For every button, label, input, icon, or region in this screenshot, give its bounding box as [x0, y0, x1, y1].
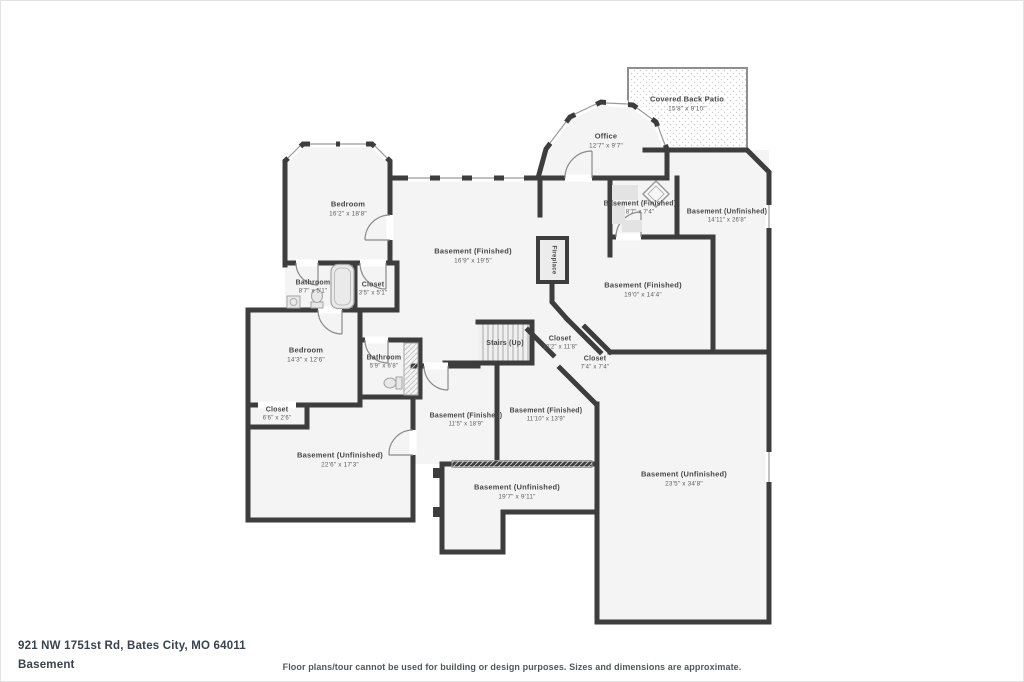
- room-name: Bedroom: [329, 201, 367, 210]
- room-dims: 16'2" x 18'8": [329, 210, 367, 217]
- room-label-basement-finished-east: Basement (Finished)19'0" x 14'4": [604, 282, 682, 299]
- room-dims: 11'10" x 13'9": [510, 417, 583, 423]
- room-name: Basement (Unfinished): [297, 452, 383, 461]
- room-dims: 6'6" x 2'6": [263, 416, 291, 422]
- room-dims: 22'6" x 17'3": [297, 461, 383, 468]
- room-label-closet-4: Closet7'4" x 7'4": [581, 355, 609, 370]
- room-name: Basement (Finished): [604, 282, 682, 291]
- room-label-covered-back-patio: Covered Back Patio15'8" x 9'10": [650, 96, 724, 113]
- room-dims: 5'9" x 6'8": [367, 364, 402, 370]
- room-name: Office: [589, 133, 623, 142]
- room-name: Basement (Finished): [604, 200, 677, 208]
- room-name: Stairs (Up): [486, 340, 524, 348]
- disclaimer-text: Floor plans/tour cannot be used for buil…: [0, 662, 1024, 672]
- room-name: Closet: [542, 335, 577, 343]
- room-label-basement-finished-s: Basement (Finished)11'10" x 13'9": [510, 407, 583, 422]
- room-label-closet-1: Closet3'5" x 5'1": [359, 281, 387, 296]
- room-label-office: Office12'7" x 9'7": [589, 133, 623, 150]
- room-name: Closet: [581, 355, 609, 363]
- room-name: Basement (Finished): [430, 412, 503, 420]
- room-label-bedroom-2: Bedroom14'3" x 12'6": [287, 347, 325, 364]
- room-name: Bathroom: [296, 279, 331, 287]
- room-label-basement-unfinished-bottom: Basement (Unfinished)19'7" x 9'11": [474, 484, 560, 501]
- room-dims: 19'0" x 14'4": [604, 291, 682, 298]
- room-name: Basement (Finished): [434, 248, 512, 257]
- room-label-closet-2: Closet6'6" x 2'6": [263, 406, 291, 421]
- property-address: 921 NW 1751st Rd, Bates City, MO 64011: [18, 640, 246, 652]
- floorplan-page: Covered Back Patio15'8" x 9'10"Office12'…: [0, 0, 1024, 682]
- room-name: Bathroom: [367, 354, 402, 362]
- room-dims: 16'9" x 19'5": [434, 257, 512, 264]
- room-dims: 3'5" x 5'1": [359, 291, 387, 297]
- room-dims: 23'5" x 34'8": [641, 480, 727, 487]
- room-dims: 10'2" x 11'8": [542, 345, 577, 351]
- room-name: Basement (Unfinished): [641, 471, 727, 480]
- room-name: Closet: [359, 281, 387, 289]
- room-name: Basement (Unfinished): [474, 484, 560, 493]
- room-dims: 12'7" x 9'7": [589, 142, 623, 149]
- room-label-closet-3: Closet10'2" x 11'8": [542, 335, 577, 350]
- room-dims: 11'5" x 18'9": [430, 422, 503, 428]
- room-dims: 15'8" x 9'10": [650, 105, 724, 112]
- room-dims: 19'7" x 9'11": [474, 493, 560, 500]
- room-label-basement-unfinished-left: Basement (Unfinished)22'6" x 17'3": [297, 452, 383, 469]
- room-labels-layer: Covered Back Patio15'8" x 9'10"Office12'…: [0, 0, 1024, 682]
- room-name: Closet: [263, 406, 291, 414]
- room-label-bedroom-1: Bedroom16'2" x 18'8": [329, 201, 367, 218]
- room-name: Covered Back Patio: [650, 96, 724, 105]
- room-label-basement-unfinished-big: Basement (Unfinished)23'5" x 34'8": [641, 471, 727, 488]
- room-label-basement-finished-center: Basement (Finished)16'9" x 19'5": [434, 248, 512, 265]
- room-dims: 8'7" x 7'4": [604, 210, 677, 216]
- room-label-bathroom-2: Bathroom5'9" x 6'8": [367, 354, 402, 369]
- room-label-basement-unfinished-right: Basement (Unfinished)14'11" x 26'8": [687, 208, 767, 223]
- room-label-basement-finished-sw: Basement (Finished)11'5" x 18'9": [430, 412, 503, 427]
- room-label-basement-finished-ne: Basement (Finished)8'7" x 7'4": [604, 200, 677, 215]
- room-dims: 14'3" x 12'6": [287, 356, 325, 363]
- room-name: Bedroom: [287, 347, 325, 356]
- room-dims: 8'7" x 5'1": [296, 289, 331, 295]
- room-dims: 14'11" x 26'8": [687, 218, 767, 224]
- room-name: Basement (Finished): [510, 407, 583, 415]
- room-label-bathroom-1: Bathroom8'7" x 5'1": [296, 279, 331, 294]
- room-dims: 7'4" x 7'4": [581, 365, 609, 371]
- room-label-stairs-up: Stairs (Up): [486, 340, 524, 348]
- room-name: Fireplace: [550, 245, 557, 274]
- room-label-fireplace: Fireplace: [550, 245, 557, 274]
- room-name: Basement (Unfinished): [687, 208, 767, 216]
